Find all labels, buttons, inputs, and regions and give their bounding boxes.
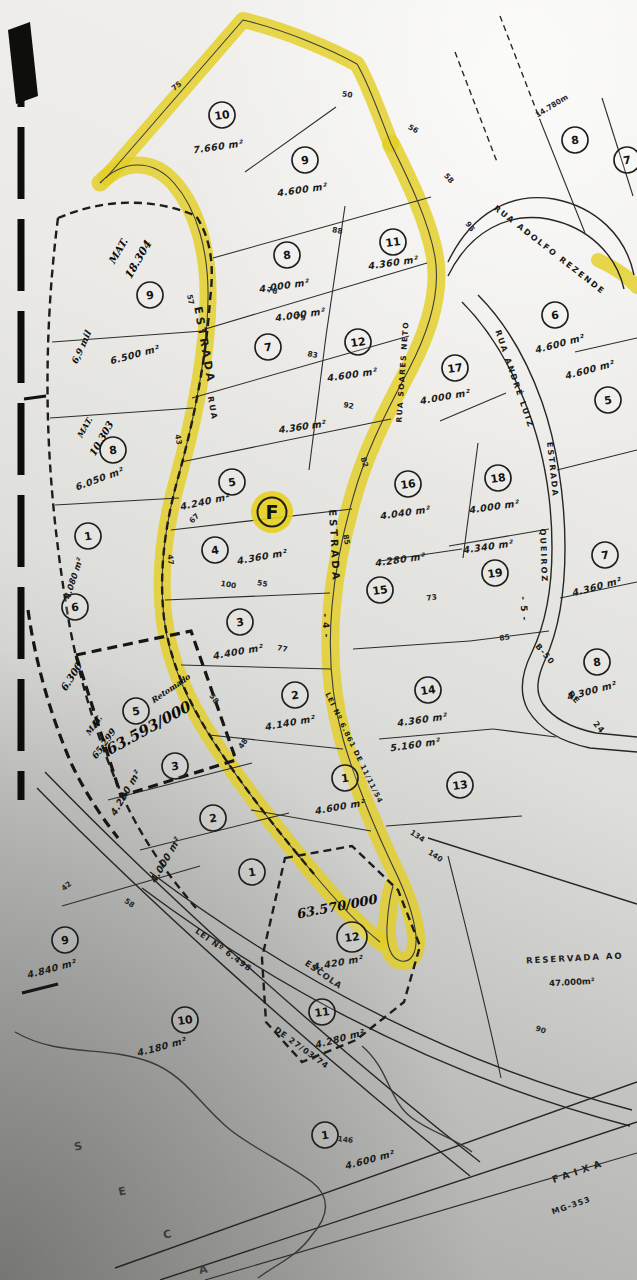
lot-right-17: 174.000 m² bbox=[419, 355, 472, 406]
dimension-label: 55 bbox=[257, 578, 269, 589]
dimension-label: 58 bbox=[123, 896, 137, 909]
lot-area-label: 4.840 m² bbox=[25, 956, 78, 980]
lot-area-label: 4.400 m² bbox=[212, 641, 265, 661]
dimension-label: 83 bbox=[306, 349, 318, 360]
dimension-label: 47 bbox=[165, 554, 175, 565]
lot-left-3: 34.200 m² bbox=[108, 753, 188, 818]
lot-area-label: 4.180 m² bbox=[135, 1034, 188, 1058]
dimension-label: 42 bbox=[60, 879, 74, 893]
lot-number: 19 bbox=[487, 566, 504, 581]
scan-edge-marks bbox=[8, 22, 118, 993]
lot-number: 12 bbox=[344, 930, 361, 945]
lot-right-5: 54.600 m² bbox=[563, 357, 621, 413]
lot-area-label: 4.360 m² bbox=[367, 253, 420, 271]
f-marker: F bbox=[251, 491, 293, 533]
lot-central-8: 84.000 m² bbox=[258, 242, 311, 295]
lot-right-6: 64.600 m² bbox=[533, 302, 586, 355]
lot-left-1: 1 bbox=[75, 523, 101, 549]
lot-right-19: 194.340 m² bbox=[462, 537, 515, 586]
lot-central-2: 24.140 m² bbox=[264, 682, 317, 732]
lot-area-label: 7.660 m² bbox=[192, 137, 245, 155]
handwritten-label: MAT. bbox=[106, 236, 130, 266]
lot-number: 17 bbox=[447, 361, 464, 376]
lot-top-right-7: 7 bbox=[614, 147, 637, 173]
lot-right-18: 184.000 m² bbox=[468, 465, 521, 516]
dimension-label: 58 bbox=[207, 692, 220, 706]
dimension-label: 140 bbox=[426, 848, 444, 864]
lot-number: 12 bbox=[350, 335, 367, 350]
lot-area-label: 4.600 m² bbox=[276, 180, 329, 198]
lot-area-label: 4.600 m² bbox=[326, 365, 379, 383]
handwritten-label: 6,9 mil bbox=[70, 328, 94, 366]
dimension-label: 57 bbox=[185, 293, 196, 305]
lot-left-1: 1 bbox=[239, 859, 265, 885]
lot-number: 10 bbox=[177, 1013, 194, 1028]
lot-number: 11 bbox=[385, 235, 402, 250]
dimension-label: 92 bbox=[342, 400, 354, 411]
lot-area-label: 4.600 m² bbox=[314, 796, 367, 816]
lot-right-13: 135.160 m² bbox=[389, 735, 473, 798]
lot-central-3: 34.400 m² bbox=[212, 609, 265, 661]
lot-area-label: 4.280 m² bbox=[374, 550, 427, 568]
printed-label: RESERVADA AO bbox=[526, 950, 624, 965]
dimension-label: 146 bbox=[337, 1134, 354, 1145]
lot-area-label: 4.340 m² bbox=[462, 537, 515, 555]
street-label: RUA ADOLFO REZENDE bbox=[492, 204, 607, 297]
stream-line bbox=[362, 1046, 472, 1152]
boundary-heavy-dash bbox=[28, 610, 118, 838]
street-label: ESTRADA bbox=[545, 441, 560, 498]
lot-number: 14 bbox=[420, 683, 437, 698]
dimension-label: 100 bbox=[220, 579, 237, 591]
lot-bottom-1: 14.600 m² bbox=[312, 1122, 396, 1171]
dimension-label: 77 bbox=[277, 643, 289, 654]
lot-area-label: 4.240 m² bbox=[178, 491, 231, 513]
lot-right-7: 74.360 m² bbox=[570, 542, 623, 598]
lot-area-label: 4.600 m² bbox=[533, 331, 586, 355]
lot-number: 11 bbox=[314, 1005, 331, 1020]
stream-letter: E bbox=[117, 1184, 127, 1198]
lot-central-12: 124.600 m² bbox=[326, 329, 379, 384]
lot-area-label: 4.000 m² bbox=[148, 834, 184, 885]
handwritten-label: MAT. bbox=[74, 415, 94, 440]
lot-central-9: 94.600 m² bbox=[276, 147, 329, 199]
printed-label: 4.360 m² bbox=[277, 418, 327, 436]
lot-bottom-10: 104.180 m² bbox=[135, 1007, 198, 1058]
street-label: - 5 - bbox=[518, 596, 530, 622]
lot-central-11: 114.360 m² bbox=[367, 229, 420, 272]
lot-area-label: 4.360 m² bbox=[396, 710, 449, 728]
dimension-label: 95 bbox=[463, 220, 476, 234]
lot-area-label: 4.000 m² bbox=[468, 497, 521, 515]
lot-central-10: 107.660 m² bbox=[192, 102, 245, 156]
dimension-label: 85 bbox=[499, 632, 511, 642]
dimension-label: 56 bbox=[406, 122, 420, 135]
tick-mark bbox=[24, 396, 46, 399]
dimension-label: 73 bbox=[426, 592, 438, 602]
lot-area-label: 4.360 m² bbox=[236, 546, 289, 566]
streams bbox=[15, 1032, 472, 1278]
printed-label: 14.780m bbox=[534, 92, 570, 119]
lot-central-5: 54.240 m² bbox=[178, 469, 245, 512]
lot-area-label: 4.140 m² bbox=[264, 712, 317, 732]
lot-number: 10 bbox=[214, 108, 231, 123]
lot-number: 16 bbox=[400, 477, 417, 492]
lot-central-4: 44.360 m² bbox=[202, 537, 289, 566]
tick-mark bbox=[22, 984, 58, 993]
lot-area-label: 4.360 m² bbox=[570, 574, 623, 598]
scanned-plat-map: F 107.660 m²94.600 m²84.000 m²114.360 m²… bbox=[0, 0, 637, 1280]
f-marker-letter: F bbox=[266, 501, 279, 523]
lot-area-label: 5.160 m² bbox=[389, 735, 442, 753]
plat-map-svg: F 107.660 m²94.600 m²84.000 m²114.360 m²… bbox=[0, 0, 637, 1280]
lot-top-right-8: 8 bbox=[562, 127, 588, 153]
printed-label: 47.000m² bbox=[549, 976, 595, 988]
dimension-label: 79 bbox=[295, 312, 307, 323]
lot-area-label: 4.000 m² bbox=[419, 386, 472, 406]
lot-area-label: 6.050 m² bbox=[73, 464, 126, 492]
lot-area-label: 4.600 m² bbox=[343, 1147, 396, 1171]
lot-area-label: 4.040 m² bbox=[379, 503, 432, 521]
dimension-label: 134 bbox=[408, 828, 426, 844]
lot-right-14: 144.360 m² bbox=[396, 677, 449, 729]
dimension-label: 90 bbox=[534, 1024, 547, 1036]
lot-area-label: 4.000 m² bbox=[258, 276, 311, 294]
lot-number: 18 bbox=[490, 471, 507, 486]
street-label: - 4 - bbox=[320, 613, 331, 638]
printed-label: 4.080 m² bbox=[62, 556, 85, 601]
lot-left-9: 94.840 m² bbox=[25, 927, 78, 980]
lot-right-15: 154.280 m² bbox=[367, 550, 427, 603]
stream-letter: C bbox=[162, 1227, 173, 1241]
lot-bottom-11: 114.280 m² bbox=[309, 999, 366, 1050]
dimension-label: 58 bbox=[442, 171, 456, 185]
lot-right-16: 164.040 m² bbox=[379, 471, 432, 522]
corner-mark bbox=[8, 22, 38, 104]
dimension-label: 43 bbox=[173, 434, 184, 446]
street-label: RUA bbox=[206, 396, 219, 422]
printed-label: MG-353 bbox=[551, 1195, 592, 1217]
printed-label: FAIXA bbox=[551, 1156, 608, 1185]
stream-letter: S bbox=[73, 1139, 84, 1153]
dimension-label: 88 bbox=[332, 225, 344, 236]
lot-number: 15 bbox=[372, 583, 389, 598]
lot-area-label: 4.600 m² bbox=[563, 357, 616, 381]
dimension-label: 78 bbox=[267, 285, 279, 296]
dimension-label: 50 bbox=[342, 89, 354, 99]
lot-area-label: 6.500 m² bbox=[108, 342, 161, 366]
lot-left-9: 96.500 m² bbox=[108, 282, 163, 366]
street-label: QUEIROZ bbox=[538, 529, 549, 584]
street-label: B-50 bbox=[534, 642, 557, 667]
dimension-label: 67 bbox=[187, 511, 201, 525]
lot-number: 13 bbox=[452, 778, 469, 793]
